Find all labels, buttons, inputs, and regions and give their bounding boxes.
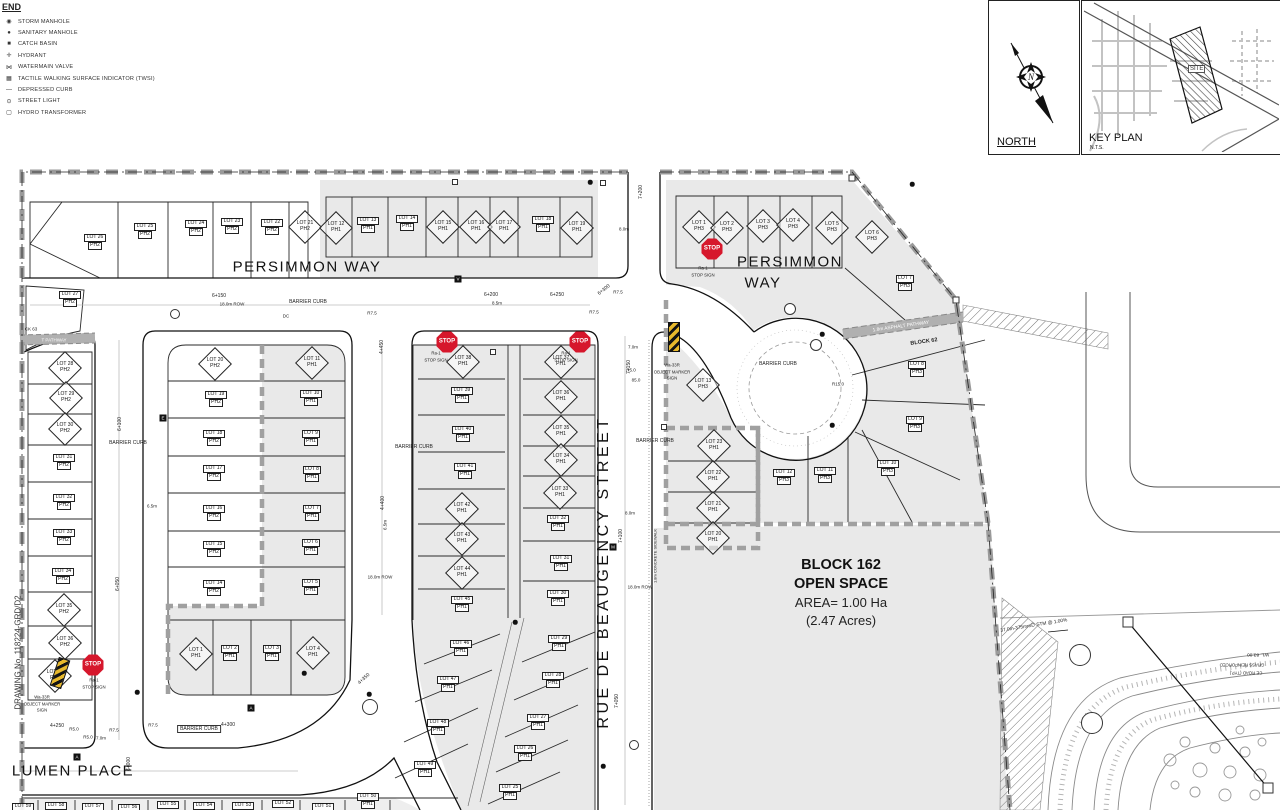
lot-phase: PH1 xyxy=(572,228,582,234)
lot-label: LOT 27PH1 xyxy=(521,707,555,737)
annotation: 7+050 xyxy=(614,694,620,708)
lot-phase: PH1 xyxy=(556,432,566,438)
annotation: BARRIER CURB xyxy=(759,361,797,367)
lot-phase: PH1 xyxy=(556,362,566,368)
legend-item: ◉STORM MANHOLE xyxy=(0,16,300,27)
lot-label: LOT 33PH2 xyxy=(47,522,81,552)
lot-label: LOT 32PH1 xyxy=(541,508,575,538)
lot-number: LOT 45 xyxy=(451,596,473,604)
annotation: BARRIER CURB xyxy=(289,299,327,305)
lot-label: LOT 11PH1 xyxy=(295,348,329,378)
lot-label: LOT 7PH1 xyxy=(295,498,329,528)
lot-label: LOT 54 xyxy=(187,791,221,810)
lot-phase: PH1 xyxy=(556,397,566,403)
lot-number: LOT 2 xyxy=(221,645,240,653)
open-space-text-line: BLOCK 162 xyxy=(756,556,926,575)
legend-item: —DEPRESSED CURB xyxy=(0,84,300,95)
lot-number: LOT 19 xyxy=(205,391,227,399)
annotation: 4+450 xyxy=(379,340,385,354)
lot-number: LOT 47 xyxy=(437,676,459,684)
lot-number: LOT 10 xyxy=(300,390,322,398)
lot-number: LOT 56 xyxy=(118,804,140,810)
lot-label: LOT 10PH1 xyxy=(294,383,328,413)
lot-number: LOT 51 xyxy=(312,803,334,810)
legend-item-label: HYDRANT xyxy=(18,53,46,59)
stop-sign-icon: STOP xyxy=(83,655,104,676)
lot-phase: PH2 xyxy=(63,299,78,307)
lot-number: LOT 46 xyxy=(450,640,472,648)
lot-number: LOT 14 xyxy=(396,215,418,223)
lot-number: LOT 16 xyxy=(203,505,225,513)
lot-phase: PH1 xyxy=(418,769,433,777)
lot-label: LOT 25PH1 xyxy=(493,777,527,807)
catch-basin-icon xyxy=(849,175,856,182)
manhole-dot-icon xyxy=(820,332,825,337)
annotation: 7+200 xyxy=(638,185,644,199)
lot-phase: PH1 xyxy=(554,563,569,571)
manhole-circle-icon xyxy=(810,339,822,351)
annotation: 4+250 xyxy=(50,723,64,729)
lot-label: LOT 2PH1 xyxy=(213,638,247,668)
stop-sign-label: Ra-1 xyxy=(431,351,440,356)
object-marker-label: OBJECT MARKER xyxy=(24,701,60,706)
lot-label: LOT 25PH2 xyxy=(128,216,162,246)
manhole-circle-icon xyxy=(629,740,639,750)
lot-label: LOT 23PH2 xyxy=(215,211,249,241)
lot-phase: PH1 xyxy=(499,227,509,233)
lot-phase: PH3 xyxy=(910,369,925,377)
legend-item: ⋈WATERMAIN VALVE xyxy=(0,62,300,73)
lot-phase: PH1 xyxy=(551,523,566,531)
lot-phase: PH1 xyxy=(556,460,566,466)
lot-phase: PH3 xyxy=(758,226,768,232)
lot-phase: PH2 xyxy=(207,438,222,446)
lot-phase: PH1 xyxy=(456,434,471,442)
lot-phase: PH2 xyxy=(57,502,72,510)
manhole-dot-icon xyxy=(601,764,606,769)
lot-number: LOT 48 xyxy=(427,719,449,727)
lot-label: LOT 40PH1 xyxy=(446,419,480,449)
lot-number: LOT 31 xyxy=(550,555,572,563)
lot-phase: PH2 xyxy=(207,588,222,596)
lot-number: LOT 17 xyxy=(203,465,225,473)
lot-phase: PH2 xyxy=(207,513,222,521)
annotation: DC xyxy=(283,314,290,319)
annotation: BARRIER CURB xyxy=(636,438,674,444)
lot-phase: PH3 xyxy=(777,477,792,485)
annotation: 18.0m ROW xyxy=(368,575,393,580)
lot-phase: PH2 xyxy=(265,227,280,235)
north-arrow-box: N NORTH xyxy=(988,0,1080,155)
lot-label: LOT 1PH1 xyxy=(179,639,213,669)
key-plan-label: KEY PLAN xyxy=(1089,132,1143,144)
lot-label: LOT 36PH2 xyxy=(48,628,82,658)
manhole-dot-icon xyxy=(588,180,593,185)
lot-number: LOT 27 xyxy=(59,291,81,299)
lot-number: LOT 52 xyxy=(272,800,294,808)
lot-phase: PH1 xyxy=(305,474,320,482)
lot-phase: PH1 xyxy=(223,653,238,661)
lot-phase: PH1 xyxy=(305,513,320,521)
lot-phase: PH2 xyxy=(225,226,240,234)
annotation: R15.0 xyxy=(832,382,844,387)
lot-number: LOT 5 xyxy=(302,579,321,587)
lot-label: LOT 30PH2 xyxy=(48,414,82,444)
lot-label: LOT 27PH2 xyxy=(53,284,87,314)
lot-phase: PH1 xyxy=(471,227,481,233)
lot-phase: PH1 xyxy=(708,508,718,514)
lot-phase: PH2 xyxy=(207,473,222,481)
lot-number: LOT 14 xyxy=(203,580,225,588)
lot-phase: PH1 xyxy=(361,225,376,233)
lot-phase: PH3 xyxy=(908,424,923,432)
annotation: R5.0 xyxy=(626,368,636,373)
lot-label: LOT 44PH1 xyxy=(445,558,479,588)
lot-phase: PH1 xyxy=(361,801,376,809)
street-name: WAY xyxy=(745,275,782,292)
lot-number: LOT 11 xyxy=(814,467,835,475)
lot-phase: PH1 xyxy=(304,438,319,446)
object-marker-label: SIGN xyxy=(37,708,48,713)
annotation: 4+300 xyxy=(221,722,235,728)
lot-phase: PH1 xyxy=(441,684,456,692)
lot-phase: PH3 xyxy=(898,283,913,291)
lot-phase: PH1 xyxy=(455,604,470,612)
utility-box-icon: A xyxy=(248,705,255,712)
legend-item-label: TACTILE WALKING SURFACE INDICATOR (TWSI) xyxy=(18,76,155,82)
legend-item-label: STORM MANHOLE xyxy=(18,19,70,25)
legend-item: ✛HYDRANT xyxy=(0,50,300,61)
north-label: NORTH xyxy=(997,136,1036,148)
lot-phase: PH1 xyxy=(331,228,341,234)
manhole-circle-icon xyxy=(784,303,796,315)
annotation: 6+050 xyxy=(115,577,121,591)
lot-number: LOT 26 xyxy=(514,745,536,753)
street-name: RUE DE BEAUGENCY STREET xyxy=(595,415,613,728)
annotation: 6+100 xyxy=(117,417,123,431)
lot-number: LOT 22 xyxy=(261,219,283,227)
lot-phase: PH1 xyxy=(552,643,567,651)
lot-label: LOT 22PH2 xyxy=(255,212,289,242)
annotation: 6+200 xyxy=(484,292,498,298)
lot-label: LOT 53 xyxy=(226,791,260,810)
legend: END ◉STORM MANHOLE●SANITARY MANHOLE■CATC… xyxy=(0,0,300,119)
lot-number: LOT 32 xyxy=(53,494,75,502)
annotation: 6.5m xyxy=(147,504,157,509)
lot-label: LOT 31PH2 xyxy=(47,447,81,477)
lot-label: LOT 34PH2 xyxy=(46,561,80,591)
lot-label: LOT 15PH1 xyxy=(426,212,460,242)
catch-basin-icon xyxy=(661,424,667,430)
lot-label: LOT 35PH2 xyxy=(47,595,81,625)
lot-label: LOT 12PH3 xyxy=(767,462,801,492)
stop-sign-label: Ra-1 xyxy=(561,351,570,356)
key-plan: SITE KEY PLAN N.T.S. xyxy=(1081,0,1280,155)
depressed-curb-icon: — xyxy=(0,87,18,93)
lot-number: LOT 34 xyxy=(52,568,74,576)
annotation: R7.5 xyxy=(109,728,119,733)
annotation: 6.5m xyxy=(383,520,388,530)
lot-label: LOT 26PH1 xyxy=(508,738,542,768)
lot-label: LOT 14PH2 xyxy=(197,573,231,603)
lot-label: LOT 36PH1 xyxy=(544,382,578,412)
lot-label: LOT 8PH1 xyxy=(295,459,329,489)
annotation: R7.5 xyxy=(613,290,623,295)
lot-label: LOT 34PH1 xyxy=(544,445,578,475)
lot-number: LOT 32 xyxy=(547,515,569,523)
annotation: 18.0m ROW xyxy=(628,585,653,590)
lot-label: LOT 12PH1 xyxy=(319,213,353,243)
lot-number: LOT 8 xyxy=(303,466,322,474)
lot-number: LOT 59 xyxy=(12,803,34,810)
drawing-number: DRAWING No. 118224-GRD/D2 xyxy=(14,573,23,733)
lot-label: LOT 59 xyxy=(6,792,40,810)
lot-label: LOT 32PH2 xyxy=(47,487,81,517)
lot-label: LOT 5PH1 xyxy=(294,572,328,602)
lot-label: LOT 10PH3 xyxy=(871,453,905,483)
lot-number: LOT 40 xyxy=(452,426,474,434)
stop-sign-label: STOP SIGN xyxy=(82,684,105,689)
utility-box-icon: V xyxy=(455,276,462,283)
watermain-valve-icon: ⋈ xyxy=(0,64,18,71)
lot-phase: PH1 xyxy=(307,363,317,369)
lot-label: LOT 13PH1 xyxy=(351,210,385,240)
street-name: PERSIMMON xyxy=(737,254,843,271)
lot-phase: PH2 xyxy=(210,364,220,370)
lot-phase: PH2 xyxy=(138,231,153,239)
lot-phase: PH1 xyxy=(265,653,280,661)
lot-number: LOT 8 xyxy=(908,361,927,369)
annotation: 8.0m xyxy=(625,511,635,516)
lot-phase: PH1 xyxy=(457,539,467,545)
lot-phase: PH1 xyxy=(438,227,448,233)
lot-label: LOT 21PH1 xyxy=(696,493,730,523)
lot-phase: PH1 xyxy=(308,653,318,659)
lot-phase: PH2 xyxy=(60,643,70,649)
lot-label: LOT 31PH1 xyxy=(544,548,578,578)
lot-number: LOT 23 xyxy=(221,218,243,226)
annotation: T PATHWAY xyxy=(41,338,66,343)
lot-label: LOT 26PH2 xyxy=(78,227,112,257)
lot-number: LOT 15 xyxy=(203,541,225,549)
manhole-dot-icon xyxy=(135,690,140,695)
east-road xyxy=(1086,292,1280,532)
lot-number: LOT 18 xyxy=(532,216,554,224)
key-plan-site-label: SITE xyxy=(1188,65,1205,73)
annotation: R5.0 xyxy=(69,727,79,732)
lot-label: LOT 13PH3 xyxy=(686,370,720,400)
open-space-text-line: (2.47 Acres) xyxy=(756,612,926,630)
lot-number: LOT 24 xyxy=(185,220,207,228)
lot-number: LOT 50 xyxy=(357,793,379,801)
legend-item: ▢HYDRO TRANSFORMER xyxy=(0,107,300,118)
hydrant-icon: ✛ xyxy=(0,52,18,59)
lot-label: LOT 6PH3 xyxy=(855,222,889,252)
lot-label: LOT 4PH3 xyxy=(776,210,810,240)
lot-number: LOT 41 xyxy=(454,463,476,471)
lot-label: LOT 50PH1 xyxy=(351,786,385,810)
catch-basin-icon xyxy=(600,180,606,186)
manhole-dot-icon xyxy=(910,182,915,187)
annotation: R7.5 xyxy=(589,310,599,315)
lot-phase: PH1 xyxy=(708,538,718,544)
annotation: 8.5m xyxy=(492,301,502,306)
lot-phase: PH2 xyxy=(57,537,72,545)
lot-label: LOT 51 xyxy=(306,792,340,810)
site-plan-drawing: END ◉STORM MANHOLE●SANITARY MANHOLE■CATC… xyxy=(0,0,1280,810)
lot-number: LOT 13 xyxy=(357,217,379,225)
manhole-circle-icon xyxy=(170,309,180,319)
lot-label: LOT 39PH1 xyxy=(445,380,479,410)
lot-label: LOT 6PH1 xyxy=(294,532,328,562)
lot-label: LOT 3PH1 xyxy=(255,638,289,668)
lot-number: LOT 30 xyxy=(547,590,569,598)
lot-label: LOT 28PH2 xyxy=(48,353,82,383)
sanitary-manhole-icon: ● xyxy=(0,30,18,36)
lot-phase: PH2 xyxy=(207,549,222,557)
annotation: 85.0 xyxy=(632,378,641,383)
annotation: 7.0m xyxy=(628,345,638,350)
manhole-dot-icon xyxy=(302,671,307,676)
annotation: CE ROAD (TYP.) xyxy=(1230,671,1263,676)
lot-label: LOT 47PH1 xyxy=(431,669,465,699)
lot-label: LOT 5PH3 xyxy=(815,213,849,243)
lot-label: LOT 29PH2 xyxy=(49,383,83,413)
legend-list: ◉STORM MANHOLE●SANITARY MANHOLE■CATCH BA… xyxy=(0,16,300,119)
lot-phase: PH2 xyxy=(60,368,70,374)
manhole-circle-icon xyxy=(362,699,378,715)
lot-number: LOT 26 xyxy=(84,234,106,242)
annotation: 7+100 xyxy=(618,529,624,543)
lot-phase: PH2 xyxy=(61,398,71,404)
twsi-icon: ▦ xyxy=(0,75,18,82)
lot-label: LOT 8PH3 xyxy=(900,354,934,384)
lot-phase: PH2 xyxy=(189,228,204,236)
lot-label: LOT 14PH1 xyxy=(390,208,424,238)
catch-basin-icon xyxy=(1263,783,1274,794)
object-marker-label: SIGN xyxy=(667,376,678,381)
legend-item: ▦TACTILE WALKING SURFACE INDICATOR (TWSI… xyxy=(0,73,300,84)
lot-phase: PH3 xyxy=(722,228,732,234)
annotation: 4+400 xyxy=(380,496,386,510)
lot-phase: PH1 xyxy=(546,680,561,688)
manhole-dot-icon xyxy=(513,620,518,625)
annotation: BARRIER CURB xyxy=(395,444,433,450)
lot-label: LOT 19PH2 xyxy=(199,384,233,414)
lot-phase: PH3 xyxy=(694,227,704,233)
lot-phase: PH2 xyxy=(59,610,69,616)
annotation: 8.0m xyxy=(619,227,629,232)
lot-label: LOT 18PH2 xyxy=(197,423,231,453)
utility-box-icon: A xyxy=(74,754,81,761)
lot-phase: PH1 xyxy=(536,224,551,232)
lot-phase: PH1 xyxy=(304,587,319,595)
lot-label: LOT 9PH1 xyxy=(294,423,328,453)
legend-item-label: STREET LIGHT xyxy=(18,98,60,104)
stop-sign-label: STOP SIGN xyxy=(554,357,577,362)
lot-label: LOT 58 xyxy=(39,791,73,810)
lot-phase: PH1 xyxy=(400,223,415,231)
lot-label: LOT 23PH1 xyxy=(697,431,731,461)
catch-basin-icon xyxy=(1123,617,1134,628)
annotation: 6+000 xyxy=(126,757,132,771)
lot-label: LOT 43PH1 xyxy=(445,524,479,554)
legend-item-label: WATERMAIN VALVE xyxy=(18,64,73,70)
lot-phase: PH1 xyxy=(531,722,546,730)
lot-number: LOT 18 xyxy=(203,430,225,438)
lot-label: LOT 17PH2 xyxy=(197,458,231,488)
street-light-icon: ⊙ xyxy=(0,98,18,105)
annotation: 7.0m xyxy=(96,736,106,741)
lot-number: LOT 25 xyxy=(499,784,521,792)
annotation: R5.0 xyxy=(83,735,93,740)
lot-label: LOT 22PH1 xyxy=(696,462,730,492)
annotation: 6+150 xyxy=(212,293,226,299)
manhole-dot-icon xyxy=(830,423,835,428)
lot-label: LOT 57 xyxy=(76,792,110,810)
lot-label: LOT 4PH1 xyxy=(296,638,330,668)
lot-phase: PH1 xyxy=(555,493,565,499)
lot-phase: PH1 xyxy=(431,727,446,735)
catch-basin-icon: ■ xyxy=(0,41,18,47)
legend-item: ●SANITARY MANHOLE xyxy=(0,27,300,38)
lot-phase: PH3 xyxy=(818,475,833,483)
stop-sign-label: Ra-1 xyxy=(89,678,98,683)
annotation: 18.0m ROW xyxy=(220,302,245,307)
catch-basin-icon xyxy=(452,179,458,185)
lot-phase: PH1 xyxy=(457,573,467,579)
lot-phase: PH3 xyxy=(881,468,896,476)
object-marker-label: Wa-33R xyxy=(34,695,50,700)
lot-number: LOT 9 xyxy=(906,416,925,424)
lot-label: LOT 21PH2 xyxy=(288,212,322,242)
annotation: BARRIER CURB xyxy=(177,725,221,733)
lot-number: LOT 28 xyxy=(542,672,564,680)
lot-label: LOT 16PH2 xyxy=(197,498,231,528)
lot-label: LOT 33PH1 xyxy=(543,478,577,508)
lot-phase: PH2 xyxy=(57,462,72,470)
legend-title: END xyxy=(2,2,300,12)
lot-phase: PH3 xyxy=(827,228,837,234)
lot-number: LOT 12 xyxy=(773,469,795,477)
annotation: 1.8m CONCRETE SIDEWALK xyxy=(653,529,658,583)
catch-basin-icon xyxy=(490,349,496,355)
street-name: LUMEN PLACE xyxy=(12,763,134,780)
lot-label: LOT 48PH1 xyxy=(421,712,455,742)
lot-number: LOT 33 xyxy=(53,529,75,537)
annotation: 6+250 xyxy=(550,292,564,298)
lot-label: LOT 20PH1 xyxy=(696,523,730,553)
lot-label: LOT 24PH2 xyxy=(179,213,213,243)
lot-number: LOT 25 xyxy=(134,223,156,231)
manhole-circle-icon xyxy=(1081,712,1103,734)
object-marker-label: OBJECT MARKER xyxy=(654,369,690,374)
utility-box-icon: E xyxy=(160,415,167,422)
lot-label: LOT 42PH1 xyxy=(445,494,479,524)
object-marker-sign-icon xyxy=(668,322,680,352)
lot-label: LOT 18PH1 xyxy=(526,209,560,239)
key-plan-map xyxy=(1082,1,1279,152)
annotation: GRASS REINFORCED xyxy=(1220,663,1265,668)
lot-number: LOT 58 xyxy=(45,802,67,810)
lot-phase: PH3 xyxy=(788,225,798,231)
lot-phase: PH1 xyxy=(458,471,473,479)
lot-phase: PH2 xyxy=(56,576,71,584)
lot-phase: PH1 xyxy=(708,477,718,483)
annotation: BARRIER CURB xyxy=(109,440,147,446)
lot-label: LOT 52 xyxy=(266,789,300,810)
lot-number: LOT 57 xyxy=(82,803,104,810)
